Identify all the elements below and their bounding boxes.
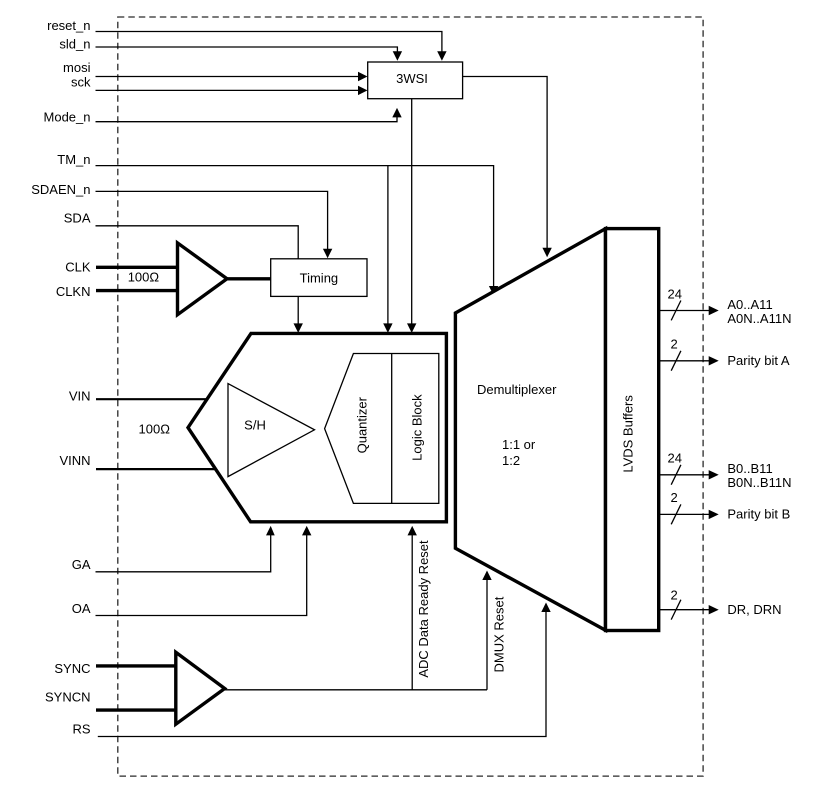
svg-text:B0N..B11N: B0N..B11N bbox=[727, 475, 791, 490]
svg-text:Timing: Timing bbox=[300, 271, 339, 286]
svg-text:Parity bit A: Parity bit A bbox=[727, 353, 789, 368]
svg-text:LVDS Buffers: LVDS Buffers bbox=[621, 395, 636, 473]
svg-text:B0..B11: B0..B11 bbox=[727, 461, 772, 476]
svg-text:DR, DRN: DR, DRN bbox=[727, 602, 781, 617]
svg-text:Parity bit B: Parity bit B bbox=[727, 507, 790, 522]
svg-text:sck: sck bbox=[71, 75, 91, 90]
svg-text:SYNC: SYNC bbox=[54, 661, 90, 676]
svg-text:sld_n: sld_n bbox=[59, 37, 90, 52]
svg-text:Demultiplexer: Demultiplexer bbox=[477, 382, 557, 397]
svg-text:2: 2 bbox=[671, 588, 678, 603]
svg-text:1:2: 1:2 bbox=[502, 453, 520, 468]
svg-text:24: 24 bbox=[668, 451, 682, 466]
svg-text:3WSI: 3WSI bbox=[396, 71, 428, 86]
svg-text:DMUX Reset: DMUX Reset bbox=[492, 596, 507, 672]
svg-text:CLKN: CLKN bbox=[56, 284, 91, 299]
svg-text:100Ω: 100Ω bbox=[128, 269, 160, 284]
svg-text:Logic Block: Logic Block bbox=[410, 394, 425, 461]
svg-text:mosi: mosi bbox=[63, 60, 91, 75]
svg-text:100Ω: 100Ω bbox=[139, 422, 171, 437]
svg-text:2: 2 bbox=[671, 337, 678, 352]
svg-text:ADC Data Ready Reset: ADC Data Ready Reset bbox=[416, 540, 431, 678]
svg-text:RS: RS bbox=[72, 722, 90, 737]
svg-text:A0..A11: A0..A11 bbox=[727, 297, 772, 312]
svg-text:VIN: VIN bbox=[69, 388, 91, 403]
svg-text:CLK: CLK bbox=[65, 260, 91, 275]
svg-text:GA: GA bbox=[72, 557, 91, 572]
svg-text:A0N..A11N: A0N..A11N bbox=[727, 311, 791, 326]
svg-text:OA: OA bbox=[72, 601, 91, 616]
svg-text:1:1 or: 1:1 or bbox=[502, 437, 536, 452]
svg-text:TM_n: TM_n bbox=[57, 152, 90, 167]
svg-text:SDAEN_n: SDAEN_n bbox=[31, 182, 90, 197]
svg-text:VINN: VINN bbox=[59, 453, 90, 468]
svg-text:S/H: S/H bbox=[244, 418, 266, 433]
svg-text:24: 24 bbox=[668, 286, 682, 301]
svg-text:reset_n: reset_n bbox=[47, 18, 90, 33]
svg-text:SDA: SDA bbox=[64, 210, 91, 225]
svg-text:SYNCN: SYNCN bbox=[45, 690, 91, 705]
svg-text:2: 2 bbox=[671, 490, 678, 505]
svg-text:Mode_n: Mode_n bbox=[44, 110, 91, 125]
svg-text:Quantizer: Quantizer bbox=[355, 396, 370, 453]
